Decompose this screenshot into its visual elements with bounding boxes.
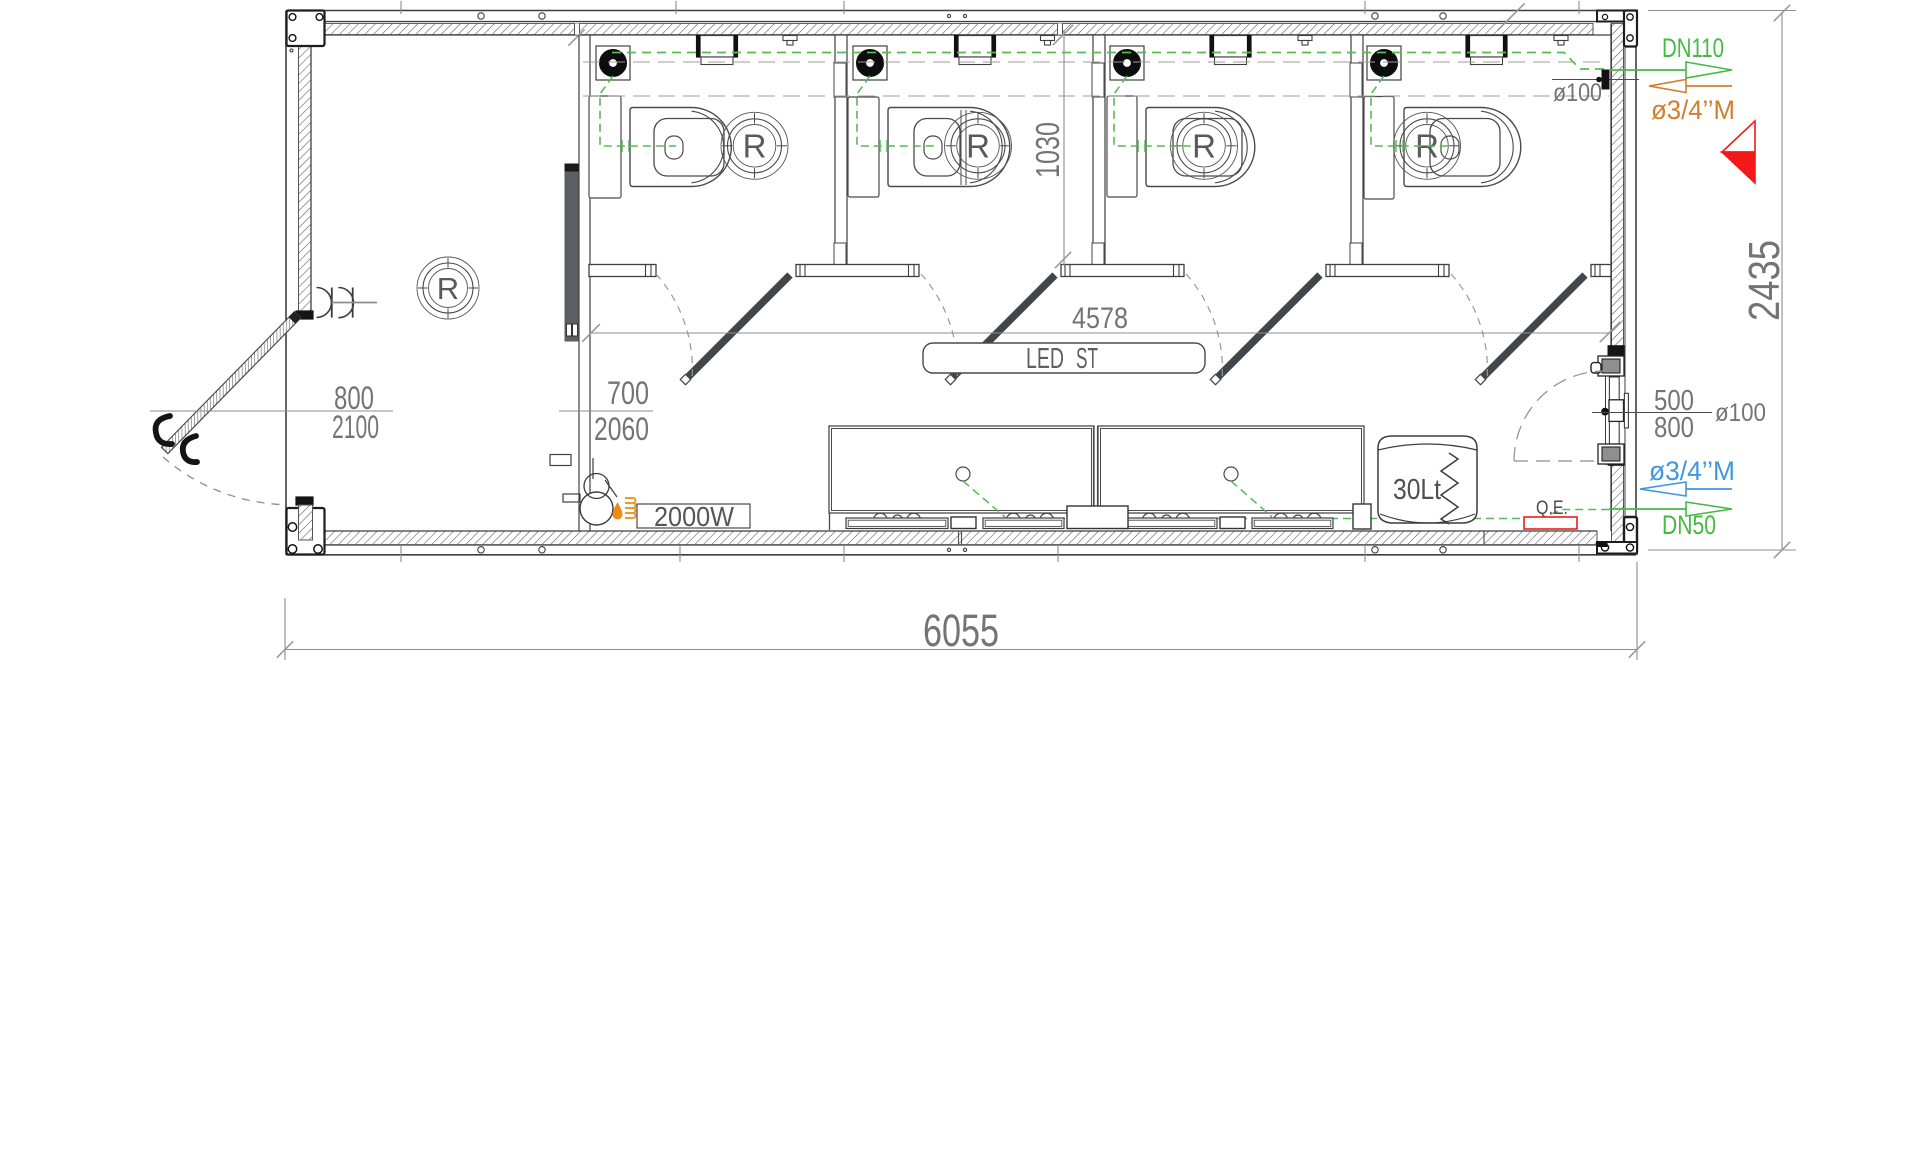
svg-text:R: R — [437, 271, 459, 306]
svg-text:Q.E.: Q.E. — [1536, 498, 1568, 519]
svg-text:LED: LED — [1026, 343, 1064, 375]
svg-text:30Lt: 30Lt — [1393, 474, 1441, 506]
svg-text:2060: 2060 — [594, 411, 649, 447]
svg-text:ø3/4’’M: ø3/4’’M — [1651, 95, 1735, 125]
svg-text:700: 700 — [607, 375, 649, 411]
svg-text:2100: 2100 — [332, 409, 379, 445]
svg-text:DN110: DN110 — [1662, 33, 1724, 63]
svg-text:2435: 2435 — [1740, 240, 1789, 321]
svg-text:2000W: 2000W — [654, 501, 735, 532]
svg-text:DN50: DN50 — [1662, 510, 1716, 540]
svg-text:4578: 4578 — [1072, 302, 1128, 335]
svg-text:ø100: ø100 — [1553, 79, 1602, 107]
svg-text:6055: 6055 — [923, 605, 999, 656]
svg-text:ST: ST — [1076, 343, 1098, 375]
svg-text:R: R — [743, 128, 767, 165]
svg-text:1030: 1030 — [1029, 122, 1066, 178]
svg-text:R: R — [1192, 128, 1216, 165]
svg-text:ø100: ø100 — [1715, 399, 1766, 427]
svg-text:800: 800 — [1654, 412, 1694, 444]
svg-text:ø3/4’’M: ø3/4’’M — [1649, 456, 1735, 486]
svg-text:R: R — [966, 128, 990, 165]
